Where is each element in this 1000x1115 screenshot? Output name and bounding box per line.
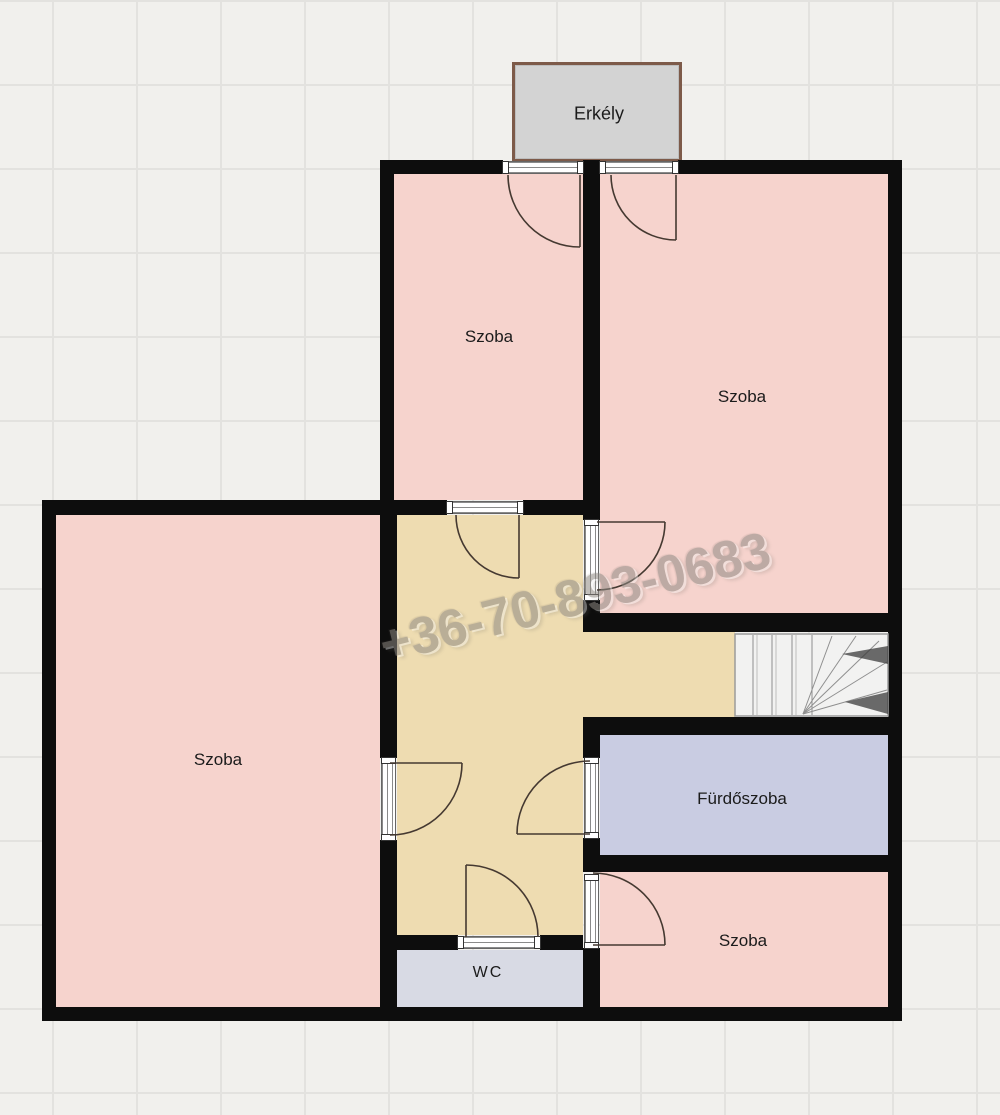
- room-left-label: Szoba: [194, 750, 242, 770]
- door-sill-hall-top: [447, 501, 523, 514]
- wall-segment: [583, 735, 600, 758]
- wall-segment: [42, 1007, 902, 1021]
- balcony-door-sill-left: [503, 161, 583, 174]
- wall-segment: [678, 160, 902, 174]
- door-sill-bathroom: [584, 758, 599, 838]
- balcony-door-sill-right: [600, 161, 678, 174]
- wall-segment: [42, 500, 447, 515]
- room-top-right-label: Szoba: [718, 387, 766, 407]
- door-sill-room-bottom-right: [584, 875, 599, 948]
- wall-segment: [583, 613, 888, 632]
- wall-segment: [583, 174, 600, 515]
- wall-segment: [540, 935, 583, 950]
- hallway-arm-area: [583, 632, 735, 717]
- door-sill-room-left: [381, 758, 396, 840]
- wall-segment: [42, 500, 56, 1021]
- room-bottom-right-label: Szoba: [719, 931, 767, 951]
- wall-segment: [888, 160, 902, 1021]
- wall-segment: [397, 935, 458, 950]
- wall-segment: [380, 160, 394, 515]
- wall-segment: [523, 500, 600, 515]
- balcony-label: Erkély: [574, 104, 624, 125]
- room-top-left-label: Szoba: [465, 327, 513, 347]
- wall-segment: [380, 840, 397, 1007]
- wall-segment: [583, 948, 600, 1007]
- door-sill-wc: [458, 936, 540, 949]
- wall-segment: [583, 160, 600, 174]
- wc-label: WC: [473, 964, 504, 982]
- bathroom-label: Fürdőszoba: [697, 789, 787, 809]
- stairs: [735, 634, 888, 716]
- wall-segment: [583, 855, 888, 872]
- wall-segment: [583, 717, 888, 735]
- wall-segment: [380, 160, 503, 174]
- floor-plan: Erkély Szoba Szoba Szoba Fürdőszoba Szob…: [0, 0, 1000, 1115]
